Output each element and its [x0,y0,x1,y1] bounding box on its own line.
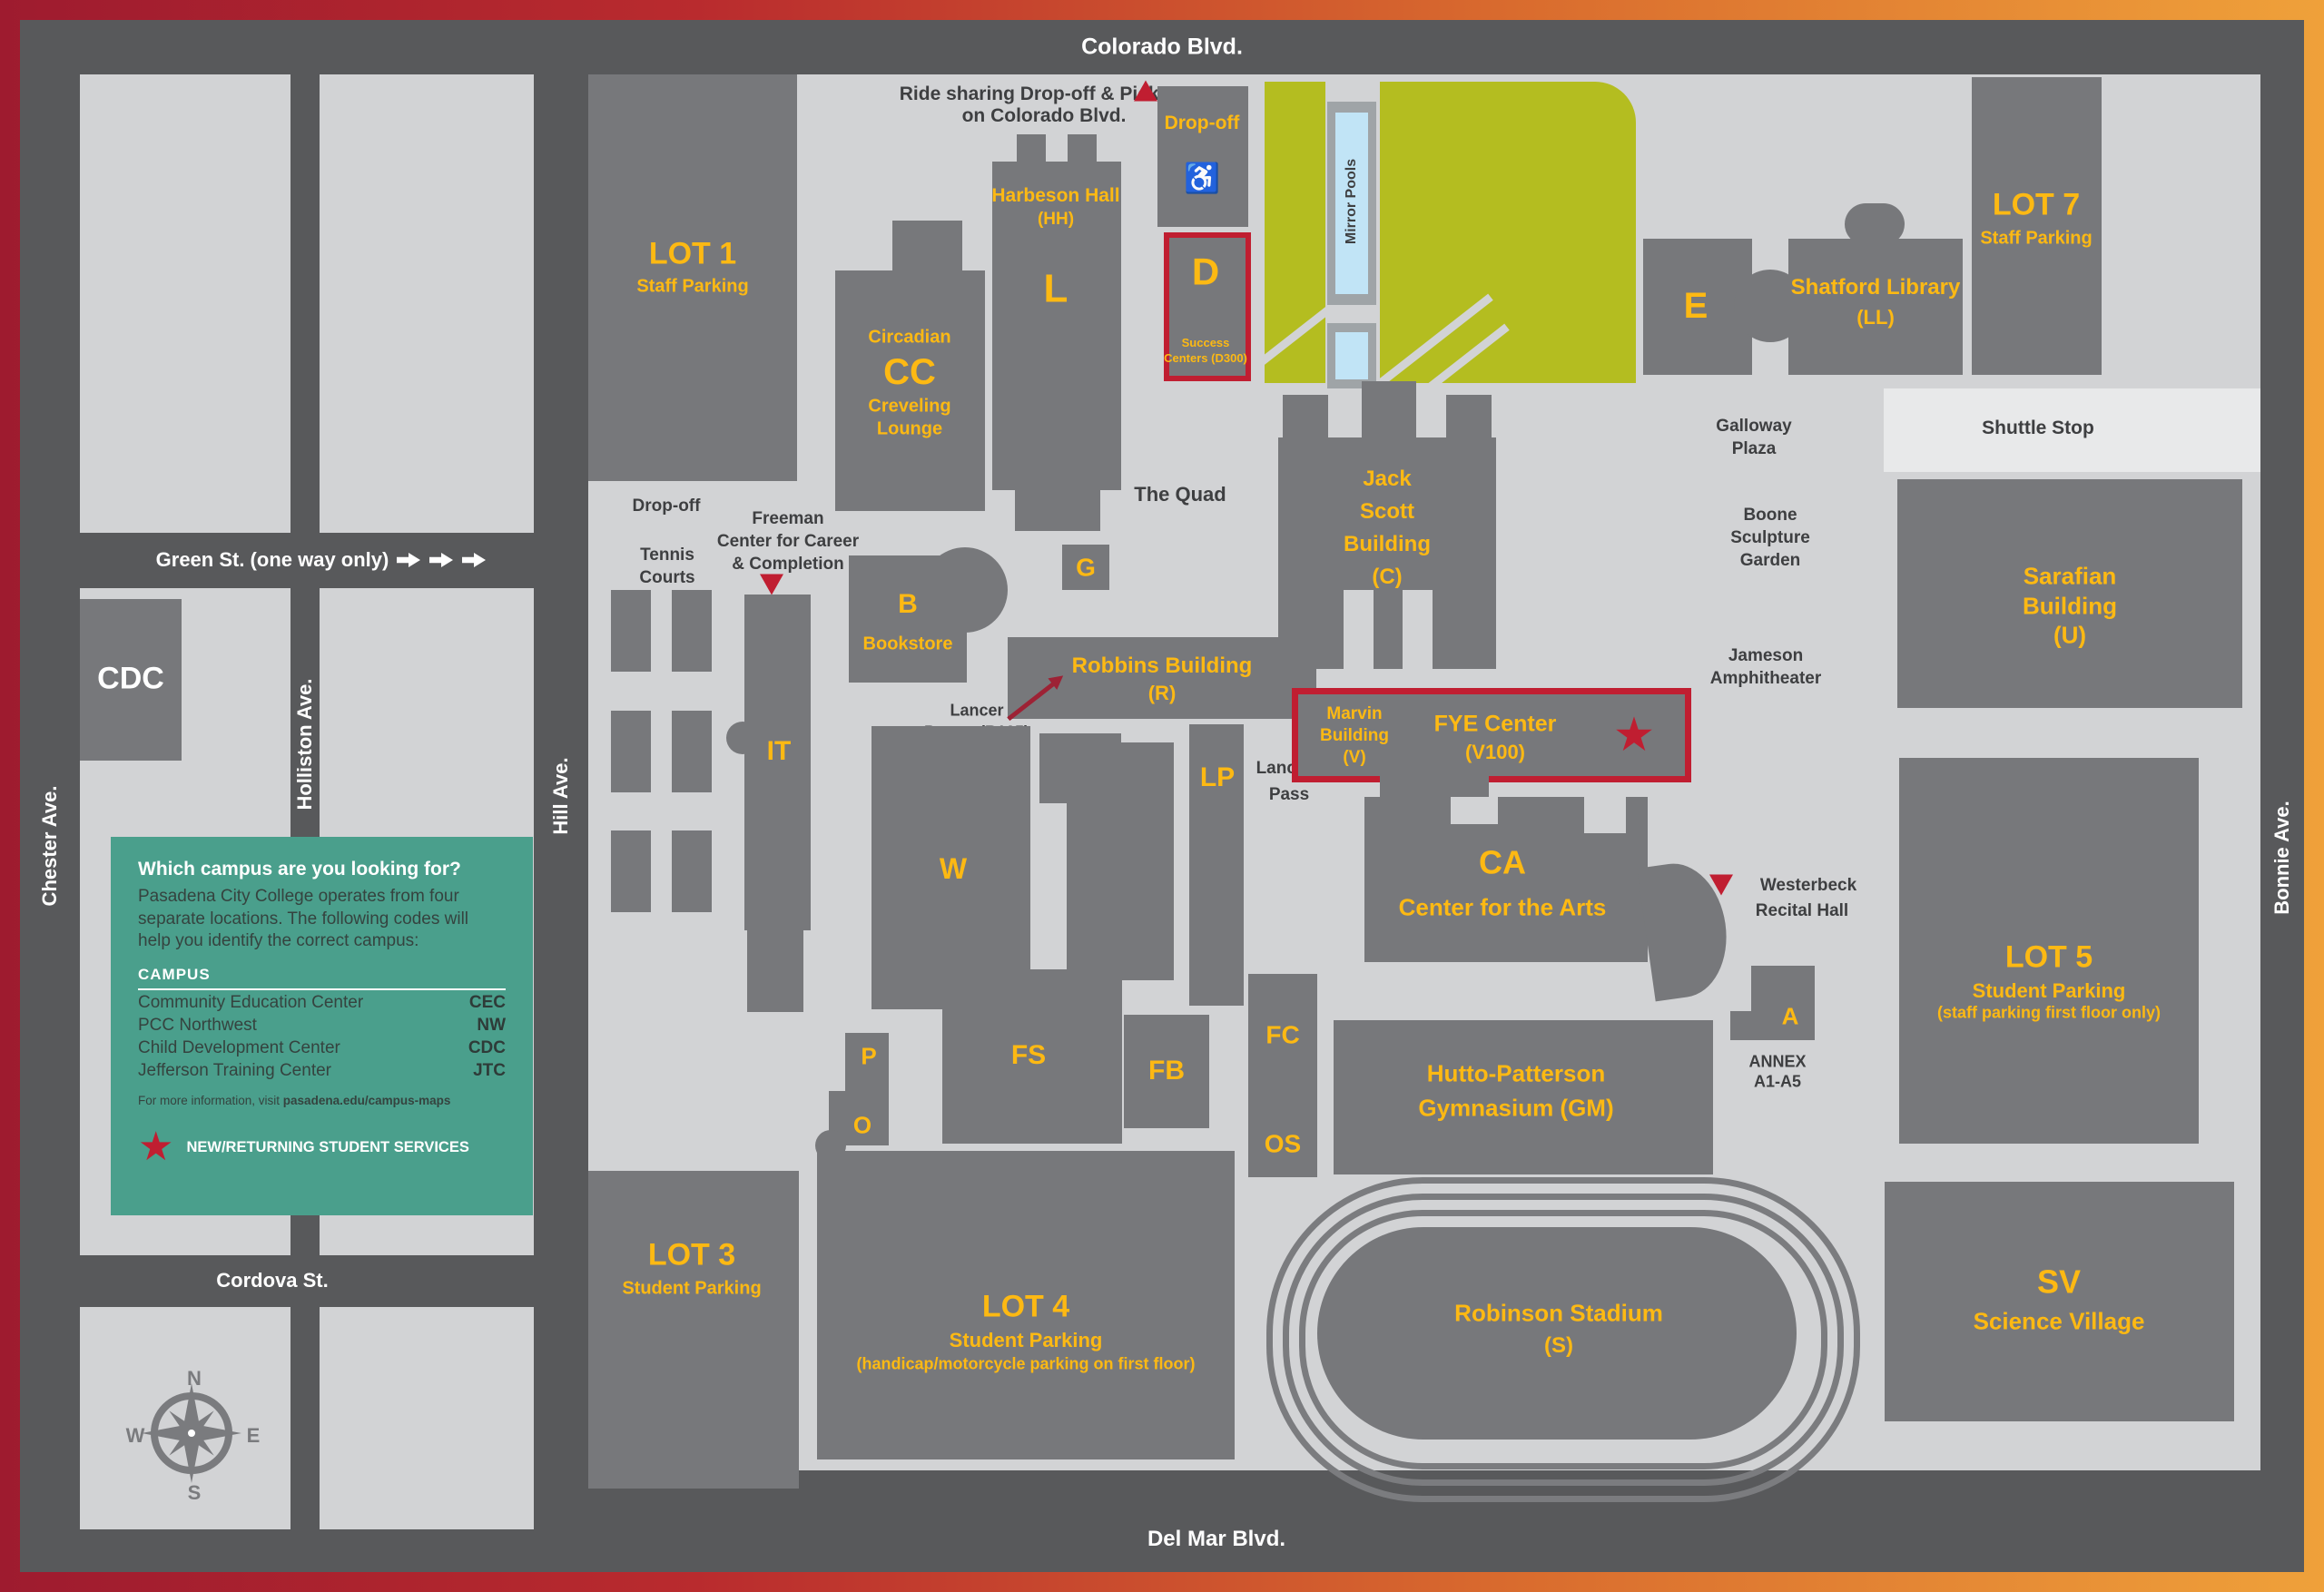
building-ca-name: Center for the Arts [1399,893,1607,923]
lot4-note: (handicap/motorcycle parking on first fl… [856,1354,1195,1375]
building-d-label2: Centers (D300) [1164,351,1247,366]
building-unlabeled [1067,742,1174,980]
campus-legend: Which campus are you looking for? Pasade… [111,837,533,1215]
one-way-arrow-icon [397,553,420,567]
boone-garden-label3: Garden [1740,550,1801,572]
tennis-court [672,711,712,792]
freeman-label3: & Completion [732,554,844,575]
street-colorado: Colorado Blvd. [1081,33,1243,62]
lot1-title: LOT 1 [649,235,736,274]
lot5-subtitle: Student Parking [1973,978,2126,1004]
star-icon: ★ [138,1127,173,1167]
fye-center-label: FYE Center [1434,710,1557,739]
compass-n: N [187,1367,202,1391]
ca-notch [1584,797,1626,833]
building-fs-letter: FS [1011,1038,1046,1073]
jameson-label2: Amphitheater [1710,668,1821,690]
building-harbeson [1015,490,1100,531]
legend-body: Pasadena City College operates from four… [138,886,506,953]
parking-lot3 [588,1171,799,1489]
westerbeck-label2: Recital Hall [1756,900,1848,922]
building-robbins-name: Robbins Building [1072,653,1253,680]
compass-w: W [126,1424,145,1448]
fye-star-icon: ★ [1615,709,1652,762]
tennis-court [611,830,651,912]
building-b-letter: B [898,587,918,622]
building-d-letter: D [1192,249,1219,297]
building-it-letter: IT [767,734,792,769]
legend-heading: Which campus are you looking for? [138,859,506,880]
lawn-west [1265,82,1325,383]
campus-name: PCC Northwest [138,1016,257,1036]
building-jackscott-label2: Scott [1360,498,1414,526]
campus-code: JTC [473,1061,506,1081]
campus-code: NW [477,1016,506,1036]
jameson-label: Jameson [1728,645,1803,667]
building-cc [892,221,962,275]
legend-footer-text: For more information, visit [138,1094,283,1107]
campus-code: CEC [469,993,506,1013]
jackscott-slot [1403,590,1433,669]
street-chester: Chester Ave. [38,786,62,907]
legend-row: Jefferson Training Center JTC [138,1061,506,1081]
freeman-label: Freeman [752,508,823,530]
building-lp-letter: LP [1200,761,1235,795]
building-sv-letter: SV [2037,1261,2081,1302]
building-sv-name: Science Village [1974,1307,2145,1337]
lawn-east [1380,82,1636,383]
building-harbeson [1017,134,1046,165]
lot7-title: LOT 7 [1993,186,2080,225]
campus-code: CDC [468,1038,506,1058]
lot3-title: LOT 3 [648,1236,735,1275]
city-block [320,74,534,533]
parking-lot7 [1972,77,2102,375]
building-e-letter: E [1684,283,1709,329]
lot7-subtitle: Staff Parking [1980,227,2092,250]
compass-s: S [188,1481,202,1505]
fye-center-code: (V100) [1465,740,1525,765]
campus-map: Colorado Blvd. Green St. (one way only) … [0,0,2324,1592]
building-jackscott-label3: Building [1344,531,1431,558]
building-jackscott [1446,395,1492,442]
campus-name: Jefferson Training Center [138,1061,331,1081]
mirror-pool-small [1335,332,1368,379]
building-w-letter: W [940,850,967,887]
building-harbeson [1068,134,1097,165]
freeman-label2: Center for Career [717,531,859,553]
westerbeck-label: Westerbeck [1760,875,1856,897]
building-sarafian-label: Sarafian [2024,562,2117,592]
building-shatford-code: (LL) [1856,305,1895,330]
building-ca-tower [1380,770,1489,801]
boone-garden-label2: Sculpture [1730,527,1810,549]
lot4-subtitle: Student Parking [950,1328,1103,1353]
shuttle-stop-label: Shuttle Stop [1982,417,2094,440]
ca-notch [1451,797,1498,824]
city-block [80,74,290,533]
rideshare-marker-icon [1134,81,1157,102]
building-ca-letter: CA [1479,841,1526,882]
lot1-subtitle: Staff Parking [636,275,748,298]
campus-name: Child Development Center [138,1038,340,1058]
street-delmar: Del Mar Blvd. [1147,1526,1285,1553]
tennis-label2: Courts [639,567,694,589]
building-cdc-label: CDC [97,660,164,699]
building-it-foot [747,930,803,1012]
legend-row: Community Education Center CEC [138,993,506,1013]
street-holliston: Holliston Ave. [293,678,317,810]
campus-name: Community Education Center [138,993,363,1013]
building-jackscott-label4: (C) [1372,564,1402,591]
building-jackscott [1283,395,1328,442]
boone-garden-label: Boone [1743,505,1797,526]
building-annex-letter: A [1782,1002,1799,1032]
building-marvin-label: Marvin [1326,703,1382,725]
compass-e: E [247,1424,261,1448]
stadium-name: Robinson Stadium [1454,1299,1663,1329]
galloway-plaza-label2: Plaza [1732,438,1777,460]
building-dropoff [1157,86,1248,227]
legend-table-header: CAMPUS [138,966,506,990]
building-cc-label2: Creveling [868,395,950,418]
tennis-court [672,830,712,912]
tennis-court [672,590,712,672]
legend-footer-link: pasadena.edu/campus-maps [283,1094,451,1107]
star-note: NEW/RETURNING STUDENT SERVICES [186,1139,468,1156]
tennis-court [611,711,651,792]
legend-star-row: ★ NEW/RETURNING STUDENT SERVICES [138,1127,506,1167]
compass-center [183,1425,200,1441]
jackscott-slot [1344,590,1374,669]
stadium-code: (S) [1544,1332,1573,1360]
building-p-letter: P [861,1042,876,1072]
building-marvin-label3: (V) [1343,747,1365,769]
street-cordova: Cordova St. [216,1268,328,1293]
annex-label2: A1-A5 [1754,1072,1801,1093]
one-way-arrow-icon [462,553,486,567]
legend-footer: For more information, visit pasadena.edu… [138,1094,506,1107]
building-d-label: Success [1182,336,1230,350]
building-annex [1730,1011,1751,1040]
building-fb-letter: FB [1148,1054,1185,1088]
building-cc-label3: Lounge [877,418,942,440]
building-o-letter: O [853,1111,871,1141]
tennis-court [611,590,651,672]
lot5-note: (staff parking first floor only) [1937,1003,2161,1024]
building-shatford-name: Shatford Library [1791,274,1961,301]
lancer-pantry-label: Lancer [950,701,1003,722]
street-green: Green St. (one way only) [156,547,389,573]
building-cc-label: Circadian [868,326,950,349]
galloway-plaza-label: Galloway [1716,416,1791,437]
city-block [320,1307,534,1529]
building-harbeson-name: Harbeson Hall [991,184,1119,208]
building-hutto-label: Hutto-Patterson [1427,1059,1605,1089]
building-jackscott-label: Jack [1363,466,1411,493]
building-jackscott [1362,381,1416,442]
wheelchair-icon: ♿ [1184,160,1220,196]
building-sarafian-label2: Building [2023,592,2117,622]
legend-row: PCC Northwest NW [138,1016,506,1036]
mirror-pools-label: Mirror Pools [1344,159,1360,244]
building-b-name: Bookstore [863,633,953,655]
street-hill: Hill Ave. [549,757,573,834]
annex-label: ANNEX [1748,1052,1806,1073]
building-g-letter: G [1076,551,1096,583]
building-harbeson-letter: L [1044,263,1068,313]
building-os-letter: OS [1265,1127,1301,1159]
building-hutto-label2: Gymnasium (GM) [1418,1094,1613,1124]
lancers-pass-label2: Pass [1269,784,1309,806]
rideshare-note2: on Colorado Blvd. [962,104,1127,128]
building-marvin-label2: Building [1320,725,1389,747]
freeman-marker-icon [760,575,783,595]
building-harbeson-code: (HH) [1038,209,1074,231]
lot3-subtitle: Student Parking [622,1277,761,1300]
tennis-label: Tennis [640,545,694,566]
map-canvas: Colorado Blvd. Green St. (one way only) … [20,20,2304,1572]
westerbeck-marker-icon [1709,875,1733,896]
lot4-title: LOT 4 [982,1288,1069,1327]
one-way-arrow-icon [429,553,453,567]
building-cc-letter: CC [883,349,936,395]
building-robbins-code: (R) [1148,681,1177,706]
building-sarafian-label3: (U) [2053,621,2086,651]
legend-row: Child Development Center CDC [138,1038,506,1058]
quad-label: The Quad [1134,482,1226,507]
dropoff-label: Drop-off [1165,112,1240,135]
street-bonnie: Bonnie Ave. [2270,801,2294,915]
building-fc-letter: FC [1265,1018,1299,1050]
dropoff-hill-label: Drop-off [633,496,701,517]
compass-rose: N S W E [135,1377,253,1495]
lot5-title: LOT 5 [2005,938,2093,978]
